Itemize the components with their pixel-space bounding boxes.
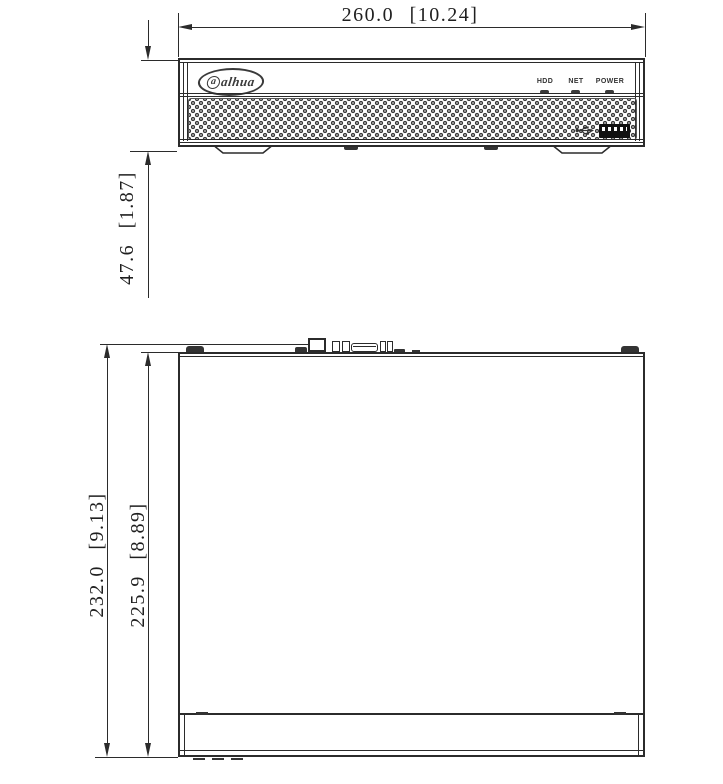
usb-port xyxy=(599,124,630,138)
ext-line-bottom xyxy=(95,757,178,758)
arrowhead-up-icon xyxy=(145,151,151,165)
body-arrow-up-icon xyxy=(145,352,151,366)
arrowhead-left-icon xyxy=(178,24,192,30)
body-depth-text: 225.9 [8.89] xyxy=(127,479,149,651)
panel-tick-right xyxy=(614,712,626,715)
brand-logo: aalhua xyxy=(196,68,266,96)
panel-endcap-right xyxy=(638,713,639,755)
bottom-inner-line xyxy=(180,750,643,751)
vga-connector xyxy=(351,343,378,352)
front-foot-left xyxy=(214,146,272,155)
overall-arrow-down-icon xyxy=(104,743,110,757)
extension-line-right xyxy=(645,13,646,57)
front-top-inner-line xyxy=(180,62,643,63)
bottom-dash-2 xyxy=(212,758,224,760)
usb-connector-4 xyxy=(387,341,393,352)
width-dimension-line xyxy=(186,27,638,28)
overall-arrow-up-icon xyxy=(104,344,110,358)
device-top-view-body xyxy=(178,352,645,757)
panel-endcap-left xyxy=(184,713,185,755)
led-label-power: POWER xyxy=(580,78,640,85)
arrowhead-down-icon xyxy=(145,46,151,60)
usb-connector-1 xyxy=(332,341,340,352)
front-panel-line xyxy=(180,713,643,715)
height-dim-line-upper xyxy=(148,20,149,47)
height-dimension-text: 47.6 [1.87] xyxy=(116,153,138,303)
usb-connector-3 xyxy=(380,341,386,352)
front-separator-line-1 xyxy=(180,93,643,94)
height-ext-line-top xyxy=(141,60,178,61)
front-endcap-right-1 xyxy=(639,62,640,141)
width-dimension-text: 260.0 [10.24] xyxy=(290,4,530,26)
usb-icon xyxy=(575,125,595,136)
dimension-drawing: 260.0 [10.24] 47.6 [1.87] aalhua HDD NET… xyxy=(0,0,723,784)
front-bottom-inner-line-2 xyxy=(180,142,643,143)
body-arrow-down-icon xyxy=(145,743,151,757)
panel-tick-left xyxy=(196,712,208,715)
vga-inner-line xyxy=(353,346,376,347)
bottom-dash-1 xyxy=(193,758,205,760)
height-ext-line-bottom xyxy=(130,151,177,152)
logo-ring-icon: a xyxy=(206,76,221,89)
height-dim-line-lower xyxy=(148,165,149,298)
ventilation-grille xyxy=(188,98,637,140)
front-tab-right xyxy=(484,147,498,150)
top-inner-line xyxy=(180,356,643,357)
usb-port-pins xyxy=(602,127,627,131)
brand-logo-text: alhua xyxy=(220,74,256,90)
front-tab-left xyxy=(344,147,358,150)
arrowhead-right-icon xyxy=(631,24,645,30)
front-endcap-left-1 xyxy=(183,62,184,141)
extension-line-left xyxy=(178,13,179,57)
front-bottom-inner-line-1 xyxy=(180,139,643,140)
device-front-panel: aalhua HDD NET POWER xyxy=(178,58,645,147)
bottom-dash-3 xyxy=(231,758,243,760)
overall-ext-line-top xyxy=(100,344,308,345)
usb-connector-2 xyxy=(342,341,350,352)
front-foot-right xyxy=(553,146,611,155)
front-separator-line-2 xyxy=(180,96,643,97)
overall-depth-text: 232.0 [9.13] xyxy=(86,469,108,641)
power-connector xyxy=(308,338,326,352)
